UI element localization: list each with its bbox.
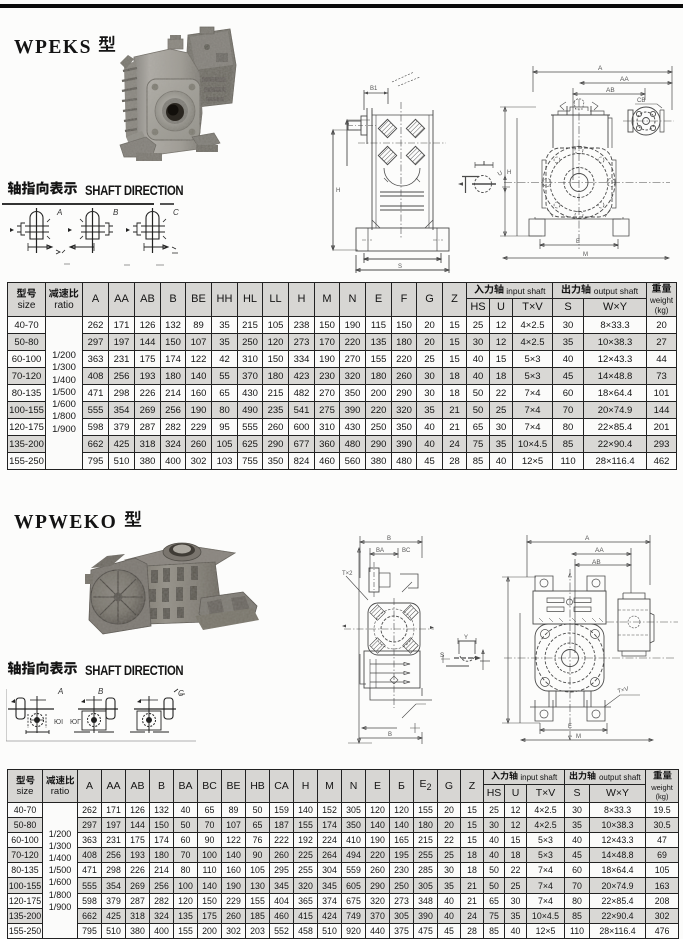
svg-text:BA: BA bbox=[376, 548, 384, 554]
svg-text:A: A bbox=[57, 687, 63, 696]
svg-text:S: S bbox=[398, 264, 402, 270]
svg-text:B: B bbox=[388, 732, 392, 738]
svg-text:T×V: T×V bbox=[617, 686, 629, 695]
svg-text:A: A bbox=[598, 65, 603, 72]
svg-text:AB: AB bbox=[592, 559, 601, 566]
svg-text:B: B bbox=[98, 687, 104, 696]
svg-text:ЮІ: ЮІ bbox=[54, 719, 63, 726]
svg-text:H: H bbox=[507, 170, 511, 176]
svg-text:AA: AA bbox=[620, 76, 629, 83]
svg-text:S: S bbox=[440, 652, 445, 659]
svg-text:T×2: T×2 bbox=[342, 571, 353, 577]
svg-text:B1: B1 bbox=[370, 86, 378, 92]
svg-text:A: A bbox=[56, 208, 62, 217]
svg-text:BC: BC bbox=[402, 548, 411, 554]
svg-text:ЮГ: ЮГ bbox=[70, 719, 81, 726]
svg-text:M: M bbox=[576, 734, 581, 740]
svg-text:C: C bbox=[178, 689, 184, 698]
svg-text:C: C bbox=[173, 208, 179, 217]
svg-text:AB: AB bbox=[606, 87, 615, 94]
svg-text:H: H bbox=[336, 188, 340, 194]
svg-text:A: A bbox=[585, 535, 590, 542]
svg-text:B: B bbox=[387, 536, 391, 542]
svg-text:Y: Y bbox=[464, 635, 468, 641]
svg-text:AA: AA bbox=[595, 547, 604, 554]
svg-text:E: E bbox=[576, 239, 580, 245]
svg-text:M: M bbox=[583, 252, 588, 258]
svg-text:CB: CB bbox=[637, 98, 645, 104]
svg-text:E: E bbox=[568, 724, 572, 730]
svg-text:B: B bbox=[113, 208, 119, 217]
